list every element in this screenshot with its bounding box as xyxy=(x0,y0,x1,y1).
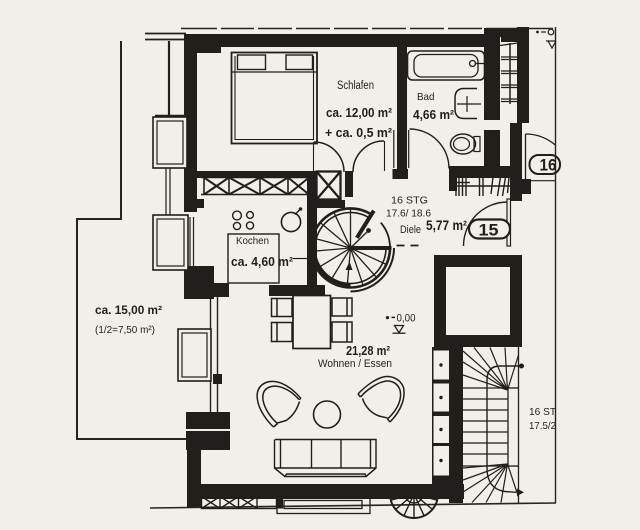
svg-text:Diele: Diele xyxy=(400,224,421,236)
svg-text:4,66 m²: 4,66 m² xyxy=(413,108,454,122)
svg-text:17.6/ 18.6: 17.6/ 18.6 xyxy=(386,208,431,220)
svg-text:21,28 m²: 21,28 m² xyxy=(346,344,390,358)
svg-text:16 STG: 16 STG xyxy=(391,195,428,207)
svg-text:16 ST: 16 ST xyxy=(529,406,557,418)
svg-text:ca. 4,60 m²: ca. 4,60 m² xyxy=(231,254,294,269)
svg-text:17.5/2: 17.5/2 xyxy=(529,420,556,432)
svg-text:15: 15 xyxy=(479,221,499,240)
svg-text:Bad: Bad xyxy=(417,91,435,103)
svg-text:ca. 12,00 m²: ca. 12,00 m² xyxy=(326,106,392,120)
svg-text:Wohnen / Essen: Wohnen / Essen xyxy=(318,358,392,370)
svg-text:+ ca. 0,5 m²: + ca. 0,5 m² xyxy=(325,126,392,140)
svg-text:Schlafen: Schlafen xyxy=(337,80,374,92)
svg-text:(1/2=7,50 m²): (1/2=7,50 m²) xyxy=(95,325,155,336)
svg-text:5,77 m²: 5,77 m² xyxy=(426,218,467,233)
svg-text:16: 16 xyxy=(540,157,557,175)
svg-text:ca. 15,00 m²: ca. 15,00 m² xyxy=(95,303,162,317)
svg-text:0,00: 0,00 xyxy=(397,313,416,325)
svg-text:Kochen: Kochen xyxy=(236,235,269,247)
